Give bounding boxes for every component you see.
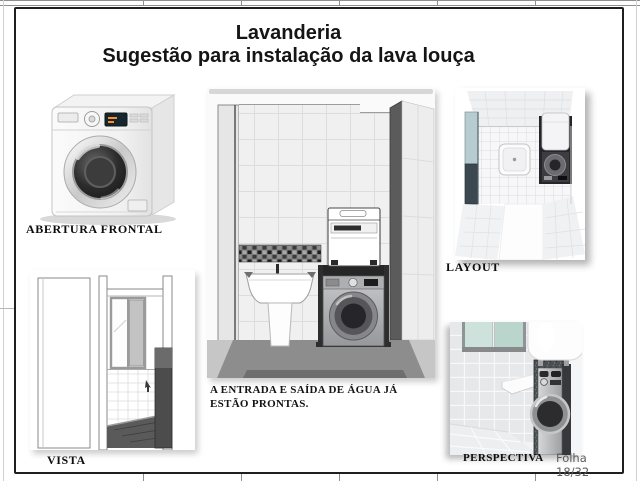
top-rule-lower [0,5,640,6]
column-tick [437,1,438,6]
vista-elevation [30,270,195,450]
slide-title-block: Lavanderia Sugestão para instalação da l… [16,22,561,68]
water-note: A ENTRADA E SAÍDA DE ÁGUA JÁ ESTÃO PRONT… [210,384,420,411]
abertura-frontal-label: ABERTURA FRONTAL [26,222,163,237]
front-load-washer-illustration [30,88,185,228]
perspective-view [450,322,582,455]
column-tick [143,1,144,6]
column-tick [535,474,536,481]
slide-frame: Lavanderia Sugestão para instalação da l… [14,7,624,474]
page-margin-divider [0,308,14,309]
column-tick [241,474,242,481]
column-tick [535,1,536,6]
water-note-line2: ESTÃO PRONTAS. [210,398,420,412]
page-title: Lavanderia [16,22,561,45]
page-edge-left [3,0,4,481]
column-tick [143,474,144,481]
page-subtitle: Sugestão para instalação da lava louça [16,45,561,68]
column-tick [339,474,340,481]
perspective-illustration [450,322,582,455]
document-page: Lavanderia Sugestão para instalação da l… [0,0,640,481]
layout-label: LAYOUT [446,260,500,275]
layout-illustration [455,88,585,260]
layout-top-view [455,88,585,260]
top-rule-upper [0,0,640,1]
page-edge-right [636,0,637,481]
vista-illustration [30,270,195,450]
washer-photo [30,88,185,228]
column-tick [241,1,242,6]
column-tick [339,1,340,6]
column-tick [437,474,438,481]
laundry-room-render [207,88,435,378]
vista-label: VISTA [47,453,86,468]
water-note-line1: A ENTRADA E SAÍDA DE ÁGUA JÁ [210,384,420,398]
sheet-number: Folha 18/32 [556,451,622,479]
perspectiva-label: PERSPECTIVA [463,452,544,464]
laundry-render-illustration [207,88,435,378]
